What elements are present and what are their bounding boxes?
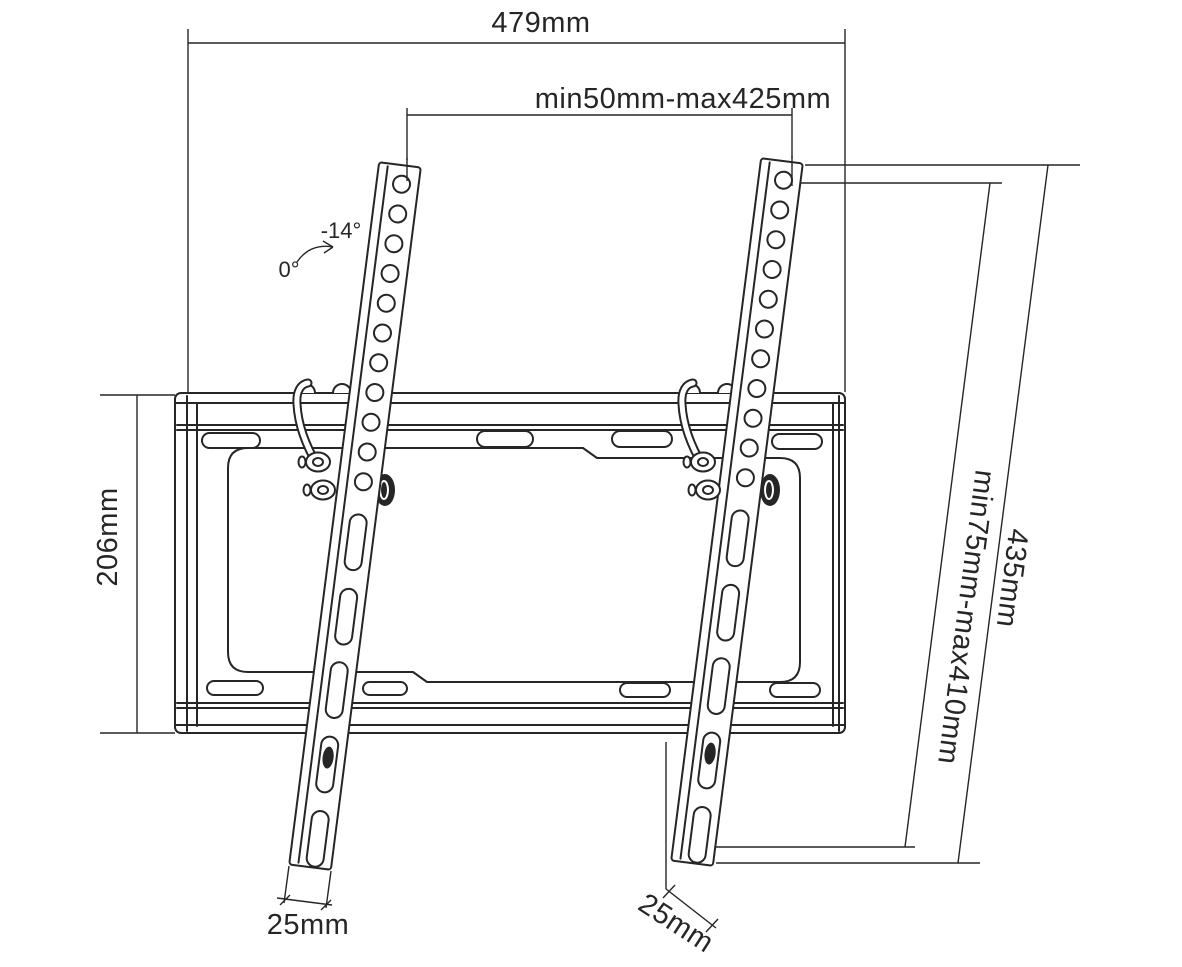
tilt-annotation: 0° -14° (278, 218, 361, 282)
hole-pattern-width-label: min50mm-max425mm (535, 83, 831, 115)
screw-tip (684, 457, 691, 468)
dimension-ticks (280, 895, 331, 910)
plate-height-label: 206mm (92, 487, 124, 586)
tilt-min-label: 0° (278, 257, 299, 282)
overall-width-label: 479mm (491, 7, 590, 39)
screw-tip (689, 485, 696, 496)
dim-rail-width-left: 25mm (267, 866, 350, 941)
arrow-arc (297, 246, 333, 262)
nut-center (703, 486, 713, 494)
hook-tab (333, 384, 351, 393)
screw-tip (299, 457, 306, 468)
tilt-arrow-icon (297, 241, 333, 262)
tilt-max-label: -14° (321, 218, 362, 243)
tv-mount-dimension-diagram: 479mm min50mm-max425mm 206mm min75mm-max… (0, 0, 1182, 967)
nut-center (313, 458, 323, 466)
nut-center (698, 458, 708, 466)
nut-center (318, 486, 328, 494)
rail-length-label: 435mm (990, 527, 1034, 629)
dim-plate-height: 206mm (92, 395, 175, 733)
rail-width-left-label: 25mm (267, 909, 350, 941)
rail-width-right-label: 25mm (633, 888, 720, 960)
technical-drawing-page: 479mm min50mm-max425mm 206mm min75mm-max… (0, 0, 1182, 967)
screw-tip (304, 485, 311, 496)
dim-hole-pattern-width: min50mm-max425mm (407, 83, 831, 160)
